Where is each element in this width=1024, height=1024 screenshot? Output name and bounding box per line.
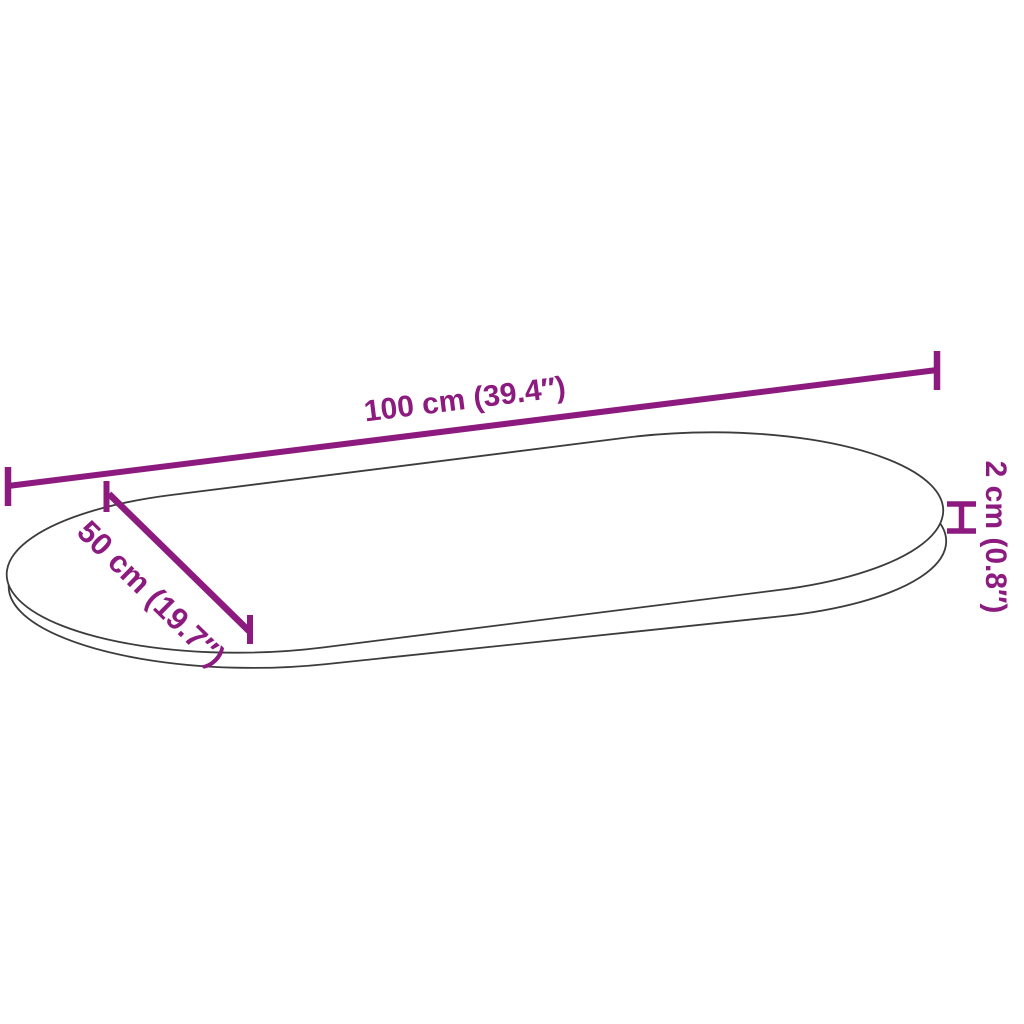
diagram-svg: 100 cm (39.4″) 50 cm (19.7″) 2 cm (0.8″)	[0, 0, 1024, 1024]
thickness-dimension-label: 2 cm (0.8″)	[979, 461, 1012, 614]
product-dimension-diagram: 100 cm (39.4″) 50 cm (19.7″) 2 cm (0.8″)	[0, 0, 1024, 1024]
